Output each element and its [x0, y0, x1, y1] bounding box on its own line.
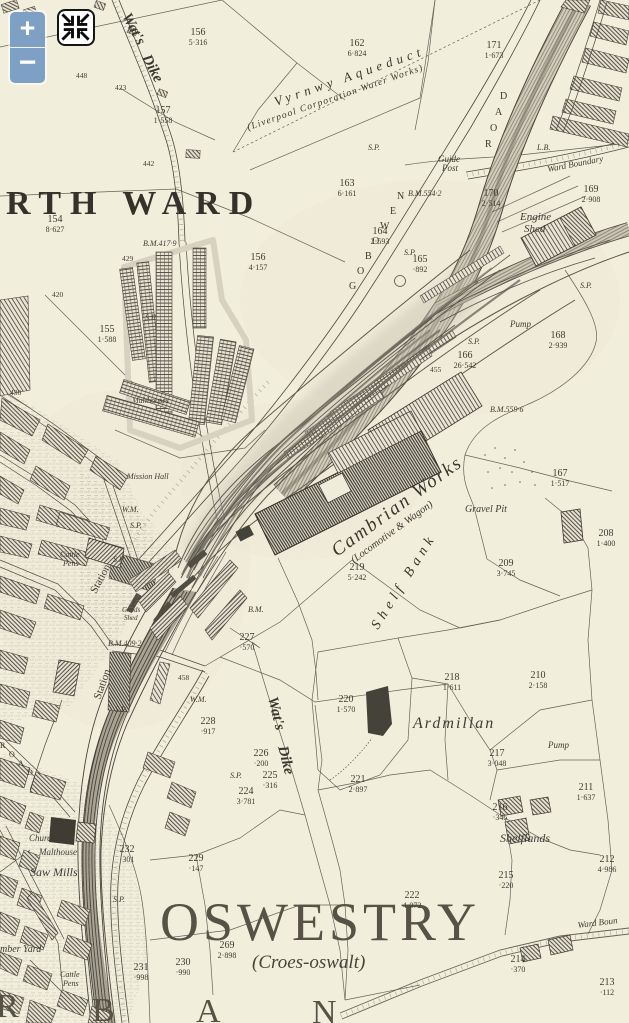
svg-text:156: 156 [191, 27, 206, 38]
svg-text:166: 166 [458, 350, 473, 361]
svg-text:·570: ·570 [240, 643, 255, 652]
svg-text:(Croes-oswalt): (Croes-oswalt) [252, 952, 365, 973]
svg-text:156: 156 [251, 252, 266, 263]
svg-text:Mission Hall: Mission Hall [126, 472, 169, 481]
svg-text:O: O [9, 750, 15, 759]
svg-text:G: G [349, 281, 356, 292]
svg-text:mber Yard: mber Yard [0, 944, 42, 955]
svg-text:Church: Church [29, 833, 56, 843]
svg-text:A: A [18, 759, 24, 768]
svg-text:N: N [312, 994, 337, 1023]
svg-text:232: 232 [120, 844, 135, 855]
svg-text:2·514: 2·514 [482, 199, 501, 208]
svg-text:2·939: 2·939 [549, 341, 568, 350]
svg-text:163: 163 [340, 178, 355, 189]
svg-text:2·897: 2·897 [349, 785, 368, 794]
svg-text:227: 227 [240, 632, 255, 643]
svg-text:224: 224 [239, 786, 254, 797]
svg-text:Gravel Pit: Gravel Pit [465, 504, 507, 515]
svg-text:1·611: 1·611 [443, 683, 461, 692]
svg-text:Post: Post [441, 163, 459, 173]
svg-text:222: 222 [405, 890, 420, 901]
svg-text:4·157: 4·157 [249, 263, 268, 272]
svg-text:Pens: Pens [62, 979, 79, 988]
svg-text:420: 420 [52, 290, 64, 299]
svg-text:2·593: 2·593 [371, 237, 390, 246]
svg-text:Cattle: Cattle [60, 550, 80, 559]
svg-text:154: 154 [48, 214, 63, 225]
svg-text:423: 423 [115, 83, 127, 92]
svg-text:3·048: 3·048 [488, 759, 507, 768]
svg-text:1·570: 1·570 [337, 705, 356, 714]
svg-text:L.B.: L.B. [536, 143, 550, 152]
svg-text:B.M.554·2: B.M.554·2 [408, 189, 442, 198]
svg-text:458: 458 [178, 673, 190, 682]
svg-text:3·745: 3·745 [497, 569, 516, 578]
svg-text:1·588: 1·588 [98, 335, 117, 344]
svg-text:·112: ·112 [600, 988, 614, 997]
svg-text:230: 230 [176, 957, 191, 968]
svg-text:217: 217 [490, 748, 505, 759]
svg-text:·200: ·200 [254, 759, 269, 768]
svg-text:S.P.: S.P. [404, 248, 416, 257]
svg-text:269: 269 [220, 940, 235, 951]
svg-text:6·824: 6·824 [348, 49, 367, 58]
svg-text:219: 219 [350, 562, 365, 573]
svg-text:Malthouses: Malthouses [131, 396, 169, 405]
svg-text:221: 221 [351, 774, 366, 785]
svg-text:W.M.: W.M. [122, 505, 139, 514]
svg-text:Ardmillan: Ardmillan [412, 715, 495, 732]
svg-text:Saw Mills: Saw Mills [30, 865, 78, 879]
svg-text:213: 213 [600, 977, 615, 988]
svg-text:430: 430 [10, 388, 22, 397]
svg-text:Shed: Shed [124, 614, 138, 622]
svg-text:225: 225 [263, 770, 278, 781]
svg-text:O: O [490, 123, 497, 134]
svg-text:B: B [92, 992, 115, 1023]
svg-text:8·627: 8·627 [46, 225, 65, 234]
svg-text:1·517: 1·517 [551, 479, 570, 488]
svg-text:Shelflands: Shelflands [500, 831, 550, 845]
svg-text:S.P.: S.P. [468, 337, 480, 346]
svg-text:171: 171 [487, 40, 502, 51]
svg-text:D: D [500, 91, 507, 102]
svg-text:218: 218 [445, 672, 460, 683]
svg-text:455: 455 [430, 365, 442, 374]
svg-text:Cattle: Cattle [60, 970, 80, 979]
svg-text:R: R [0, 741, 6, 750]
svg-text:229: 229 [189, 853, 204, 864]
svg-text:·345: ·345 [493, 813, 508, 822]
svg-text:5·316: 5·316 [189, 38, 208, 47]
svg-text:214: 214 [511, 954, 526, 965]
svg-text:26·542: 26·542 [454, 361, 477, 370]
svg-text:O: O [357, 266, 364, 277]
svg-text:·301: ·301 [120, 855, 135, 864]
svg-text:170: 170 [484, 188, 499, 199]
svg-text:1·673: 1·673 [485, 51, 504, 60]
svg-text:155: 155 [100, 324, 115, 335]
svg-text:2·898: 2·898 [218, 951, 237, 960]
svg-text:231: 231 [134, 962, 149, 973]
svg-text:6·161: 6·161 [338, 189, 357, 198]
svg-text:1·558: 1·558 [154, 116, 173, 125]
svg-text:S.P.: S.P. [368, 143, 380, 152]
svg-text:S.P.: S.P. [580, 281, 592, 290]
svg-text:3·781: 3·781 [237, 797, 256, 806]
svg-text:S.P.: S.P. [130, 521, 142, 530]
svg-text:Engine: Engine [519, 211, 551, 223]
svg-text:E: E [390, 206, 396, 217]
svg-text:168: 168 [551, 330, 566, 341]
svg-text:Pump: Pump [509, 319, 531, 329]
svg-text:S.P.: S.P. [230, 771, 242, 780]
svg-text:Pump: Pump [547, 740, 569, 750]
svg-text:169: 169 [584, 184, 599, 195]
svg-text:B.M.: B.M. [248, 605, 264, 614]
svg-text:5·242: 5·242 [348, 573, 367, 582]
svg-text:208: 208 [599, 528, 614, 539]
svg-text:S.P.: S.P. [145, 313, 157, 322]
svg-text:·998: ·998 [134, 973, 149, 982]
svg-text:B.M.559·6: B.M.559·6 [490, 405, 524, 414]
svg-text:S.P.: S.P. [115, 705, 127, 714]
svg-text:A: A [495, 107, 503, 118]
svg-text:215: 215 [499, 870, 514, 881]
svg-text:164: 164 [373, 226, 388, 237]
svg-text:2·908: 2·908 [582, 195, 601, 204]
svg-text:4·986: 4·986 [598, 865, 617, 874]
svg-text:226: 226 [254, 748, 269, 759]
svg-text:212: 212 [600, 854, 615, 865]
svg-text:A: A [196, 993, 221, 1023]
svg-text:4·072: 4·072 [403, 901, 422, 910]
svg-text:Goods: Goods [122, 606, 141, 614]
svg-text:216: 216 [493, 802, 508, 813]
svg-text:·892: ·892 [413, 265, 428, 274]
svg-text:228: 228 [201, 716, 216, 727]
svg-text:·370: ·370 [511, 965, 526, 974]
svg-text:210: 210 [531, 670, 546, 681]
svg-text:N: N [397, 191, 404, 202]
svg-text:167: 167 [553, 468, 568, 479]
svg-text:·316: ·316 [263, 781, 278, 790]
svg-text:W.M.: W.M. [190, 695, 207, 704]
svg-text:220: 220 [339, 694, 354, 705]
svg-text:D: D [27, 768, 33, 777]
svg-text:211: 211 [579, 782, 594, 793]
svg-text:2·158: 2·158 [529, 681, 548, 690]
svg-text:OSWESTRY: OSWESTRY [160, 892, 480, 952]
svg-text:R: R [0, 988, 19, 1023]
svg-text:442: 442 [143, 159, 155, 168]
svg-text:B.M.417·9: B.M.417·9 [143, 239, 177, 248]
svg-text:1·637: 1·637 [577, 793, 596, 802]
svg-text:·220: ·220 [499, 881, 514, 890]
svg-text:·917: ·917 [201, 727, 216, 736]
svg-text:157: 157 [156, 105, 171, 116]
svg-text:162: 162 [350, 38, 365, 49]
svg-text:R: R [485, 139, 492, 150]
svg-text:S.P.: S.P. [113, 555, 125, 564]
svg-text:1·400: 1·400 [597, 539, 616, 548]
svg-text:B: B [365, 251, 372, 262]
svg-text:RTH WARD: RTH WARD [6, 185, 262, 222]
svg-text:429: 429 [122, 254, 134, 263]
svg-text:Shed: Shed [524, 223, 546, 235]
svg-text:Pens: Pens [62, 559, 79, 568]
svg-text:·990: ·990 [176, 968, 191, 977]
svg-text:S.P.: S.P. [113, 895, 125, 904]
svg-text:Malthouse: Malthouse [38, 847, 77, 857]
svg-text:·147: ·147 [189, 864, 204, 873]
svg-text:209: 209 [499, 558, 514, 569]
svg-text:B.M.409·2: B.M.409·2 [108, 639, 142, 648]
svg-text:448: 448 [76, 71, 88, 80]
